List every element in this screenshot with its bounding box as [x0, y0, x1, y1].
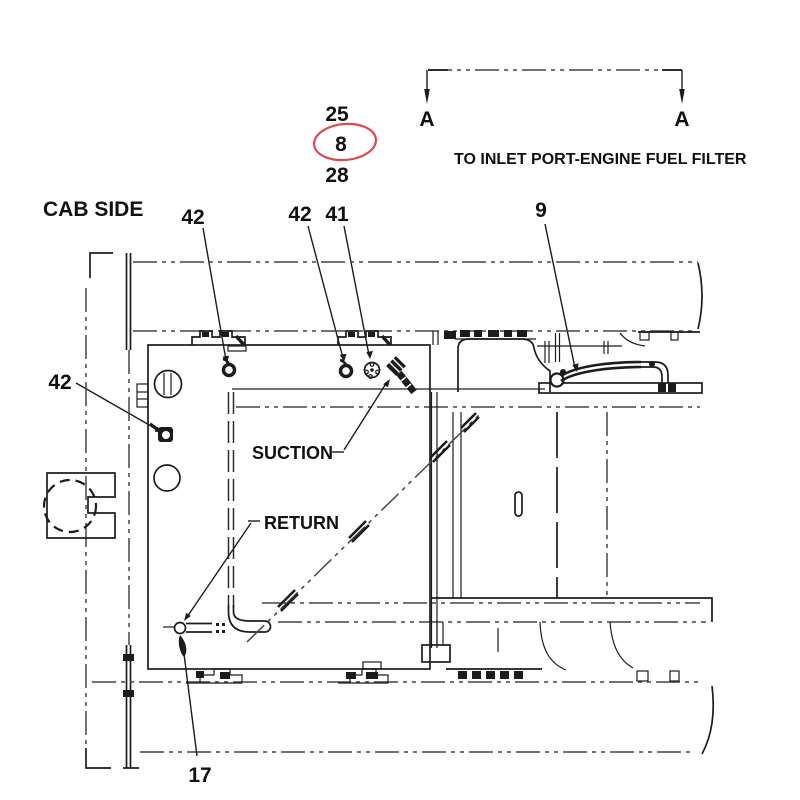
- frame-slot: [515, 492, 522, 516]
- fuel-tank-parts-diagram: A A TO INLET PORT-ENGINE FUEL FILTER CAB…: [0, 0, 800, 800]
- tank-feet: [186, 662, 388, 683]
- frame-structure: [86, 253, 713, 768]
- flange-fitting-41: [365, 363, 380, 379]
- callout-25: 25: [325, 103, 349, 126]
- return-label: RETURN: [264, 513, 339, 533]
- diagram-canvas: A A TO INLET PORT-ENGINE FUEL FILTER CAB…: [0, 0, 800, 800]
- callout-17-label: 17: [188, 764, 211, 787]
- return-fitting: [175, 623, 186, 634]
- cab-side-label: CAB SIDE: [43, 198, 143, 221]
- tank-port: [154, 465, 180, 491]
- callout-42c-label: 42: [48, 371, 71, 394]
- section-letter-right: A: [674, 108, 689, 131]
- section-letter-left: A: [419, 108, 434, 131]
- lever-base: [539, 383, 702, 393]
- lower-right-assembly: [437, 622, 679, 681]
- return-line: [163, 623, 225, 658]
- callout-28: 28: [325, 164, 349, 187]
- ring-bolt-42a: [224, 365, 235, 376]
- filler-cap: [155, 371, 182, 398]
- return-callout: RETURN: [184, 513, 339, 621]
- callout-42-top-left: 42: [181, 206, 229, 364]
- callout-stack: 25 8 28: [313, 103, 378, 187]
- callout-9-label: 9: [535, 199, 547, 222]
- lever-assembly: [539, 341, 702, 393]
- section-arrow-left-icon: [424, 89, 430, 104]
- ring-bolt-42b: [341, 366, 352, 377]
- suction-callout: SUCTION: [252, 379, 390, 463]
- callout-41-label: 41: [325, 203, 349, 226]
- suction-label: SUCTION: [252, 443, 333, 463]
- tank-top-fittings: [223, 356, 414, 392]
- section-cut-marker: A A: [419, 70, 689, 131]
- callout-42a-label: 42: [181, 206, 204, 229]
- left-support-bracket: [44, 473, 115, 538]
- tank-outline: [148, 345, 430, 669]
- suction-elbow-fitting: [386, 356, 414, 392]
- callout-42b-label: 42: [288, 203, 311, 226]
- callout-42-left: 42: [48, 371, 163, 433]
- note-inlet-port: TO INLET PORT-ENGINE FUEL FILTER: [454, 151, 747, 168]
- section-arrow-right-icon: [679, 89, 685, 104]
- fuel-tank: [137, 345, 545, 669]
- callout-17: 17: [180, 642, 211, 787]
- callout-8: 8: [335, 133, 347, 156]
